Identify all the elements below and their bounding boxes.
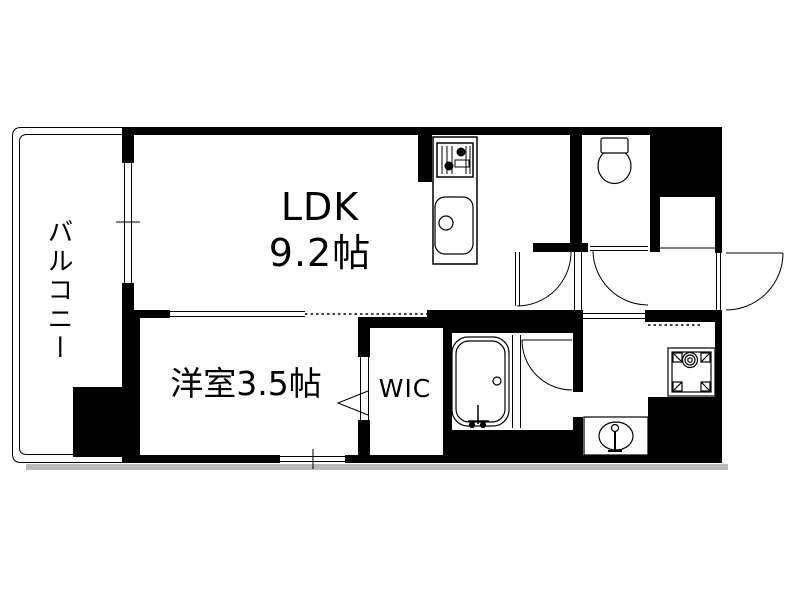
bath-door	[513, 335, 573, 428]
wall-washroom-col-lower	[573, 417, 583, 463]
wall-entrance-bottom	[645, 310, 722, 322]
bathtub-icon	[452, 337, 509, 428]
sliding-door-ldk-bedroom	[170, 312, 305, 317]
wall-bottom-left	[122, 455, 280, 463]
ldk-name: LDK	[228, 184, 412, 230]
floorplan-drawing	[0, 0, 800, 600]
wall-wic-left-upper	[358, 328, 370, 357]
sink-icon	[435, 197, 473, 254]
toilet-icon	[598, 138, 631, 184]
wall-kitchen-stub	[418, 127, 432, 182]
ldk-label: LDK 9.2帖	[228, 184, 412, 277]
wall-bath-bottom	[443, 430, 523, 463]
wall-right-upper	[715, 197, 722, 253]
wall-washroom-col-upper	[573, 333, 583, 392]
floorplan-page: バルコニー LDK 9.2帖 洋室3.5帖 WIC	[0, 0, 800, 600]
wall-br-block	[648, 397, 722, 463]
wall-wic-top	[358, 317, 443, 328]
wall-wic-left-lower	[358, 420, 370, 463]
wall-entrance-col-upper	[650, 197, 660, 252]
wall-right-lower	[715, 310, 722, 400]
plan-shadow	[26, 464, 728, 470]
wall-bath-top	[443, 313, 523, 333]
washing-machine-pan-icon	[668, 348, 715, 396]
ldk-size: 9.2帖	[228, 230, 412, 276]
hall-partition	[575, 252, 582, 310]
pipe-space-block	[650, 127, 722, 197]
wall-left-upper	[122, 127, 134, 163]
entrance-door	[717, 253, 784, 310]
wall-washroom-top	[523, 322, 583, 333]
wall-balcony-block	[73, 387, 132, 457]
kitchen-counter	[433, 137, 477, 264]
ldk-door	[516, 252, 572, 306]
toilet-door	[590, 247, 648, 306]
washroom-door	[583, 314, 645, 319]
wall-header	[533, 243, 588, 252]
wall-ldk-bedroom	[122, 310, 170, 318]
washbasin-icon	[584, 417, 648, 455]
bedroom-label: 洋室3.5帖	[148, 366, 344, 402]
window-balcony	[116, 163, 140, 283]
balcony-label: バルコニー	[40, 218, 76, 378]
wic-label: WIC	[372, 374, 438, 403]
wall-toilet-left	[570, 127, 582, 243]
wall-washroom-bottom	[523, 430, 573, 463]
